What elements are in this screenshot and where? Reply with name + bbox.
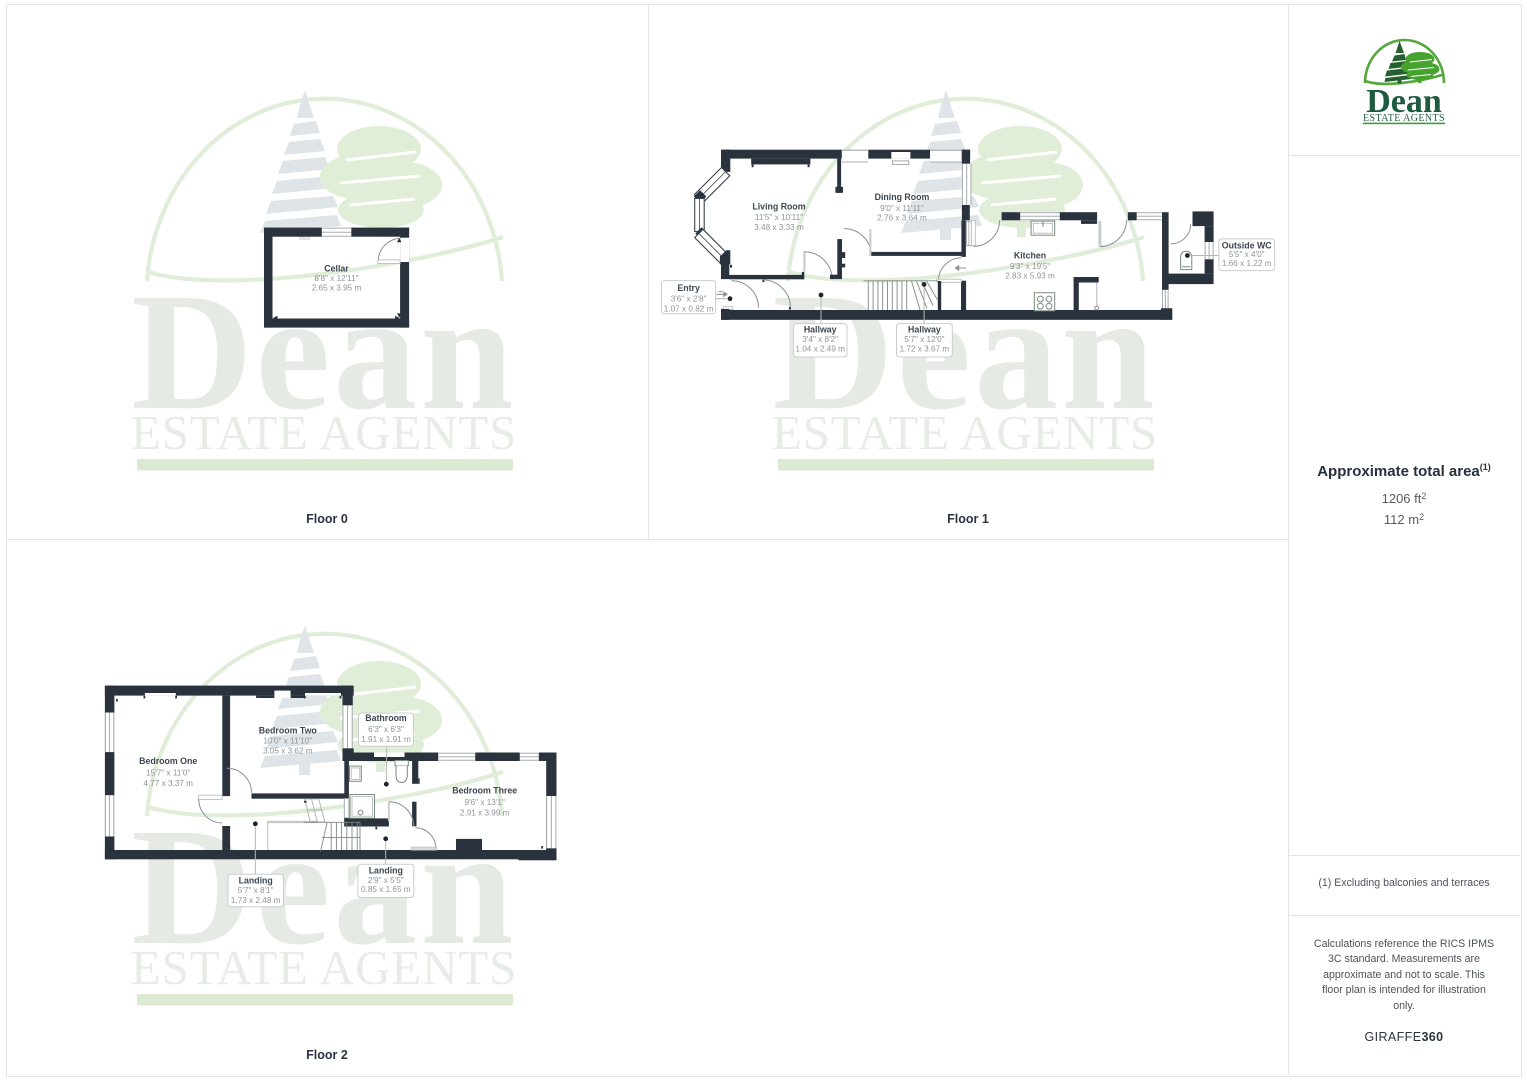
svg-text:5'7" x 12'0": 5'7" x 12'0" [904, 335, 944, 344]
svg-text:1.73 x 2.48 m: 1.73 x 2.48 m [231, 896, 281, 905]
svg-text:3'6" x 2'8": 3'6" x 2'8" [671, 295, 707, 304]
svg-text:2.83 x 5.93 m: 2.83 x 5.93 m [1005, 272, 1055, 281]
svg-text:0.85 x 1.65 m: 0.85 x 1.65 m [361, 885, 411, 894]
svg-text:1.91 x 1.91 m: 1.91 x 1.91 m [361, 735, 411, 744]
svg-text:Hallway: Hallway [908, 325, 941, 335]
svg-text:2'9" x 5'5": 2'9" x 5'5" [368, 876, 404, 885]
svg-text:Bedroom One: Bedroom One [139, 756, 197, 766]
svg-text:2.91 x 3.99 m: 2.91 x 3.99 m [460, 808, 510, 817]
svg-text:1.07 x 0.82 m: 1.07 x 0.82 m [664, 304, 714, 313]
svg-text:15'7" x 11'0": 15'7" x 11'0" [146, 768, 190, 777]
svg-text:2.65 x 3.95 m: 2.65 x 3.95 m [312, 284, 362, 293]
svg-text:Outside WC: Outside WC [1222, 240, 1272, 250]
svg-text:Entry: Entry [677, 283, 700, 293]
svg-text:4.77 x 3.37 m: 4.77 x 3.37 m [143, 779, 193, 788]
svg-text:Living Room: Living Room [752, 202, 805, 212]
svg-text:Dining Room: Dining Room [875, 192, 930, 202]
svg-text:9'6" x 13'1": 9'6" x 13'1" [465, 798, 505, 807]
svg-text:2.76 x 3.64 m: 2.76 x 3.64 m [877, 214, 927, 223]
svg-text:5'5" x 4'0": 5'5" x 4'0" [1229, 250, 1265, 259]
svg-text:11'5" x 10'11": 11'5" x 10'11" [755, 213, 803, 222]
svg-text:1.72 x 3.67 m: 1.72 x 3.67 m [900, 345, 950, 354]
svg-text:Bedroom Two: Bedroom Two [259, 725, 318, 735]
svg-text:Hallway: Hallway [804, 325, 837, 335]
svg-text:Bedroom Three: Bedroom Three [452, 785, 517, 795]
svg-text:Cellar: Cellar [324, 263, 349, 273]
svg-text:9'0" x 11'11": 9'0" x 11'11" [880, 204, 924, 213]
svg-text:Bathroom: Bathroom [365, 713, 407, 723]
svg-text:5'7" x 8'1": 5'7" x 8'1" [238, 886, 274, 895]
svg-text:9'3" x 19'5": 9'3" x 19'5" [1010, 262, 1050, 271]
svg-text:Kitchen: Kitchen [1014, 251, 1046, 261]
svg-text:1.66 x 1.22 m: 1.66 x 1.22 m [1222, 259, 1272, 268]
svg-text:1.04 x 2.49 m: 1.04 x 2.49 m [795, 345, 845, 354]
svg-text:3'4" x 8'2": 3'4" x 8'2" [802, 335, 838, 344]
svg-text:ESTATE AGENTS: ESTATE AGENTS [1363, 113, 1445, 124]
svg-text:3.05 x 3.62 m: 3.05 x 3.62 m [263, 746, 313, 755]
svg-text:3.48 x 3.33 m: 3.48 x 3.33 m [754, 223, 804, 232]
svg-text:10'0" x 11'10": 10'0" x 11'10" [263, 736, 312, 745]
svg-text:8'8" x 12'11": 8'8" x 12'11" [314, 274, 358, 283]
svg-text:Landing: Landing [239, 876, 273, 886]
svg-text:Landing: Landing [369, 865, 403, 875]
svg-text:6'3" x 6'3": 6'3" x 6'3" [368, 725, 404, 734]
